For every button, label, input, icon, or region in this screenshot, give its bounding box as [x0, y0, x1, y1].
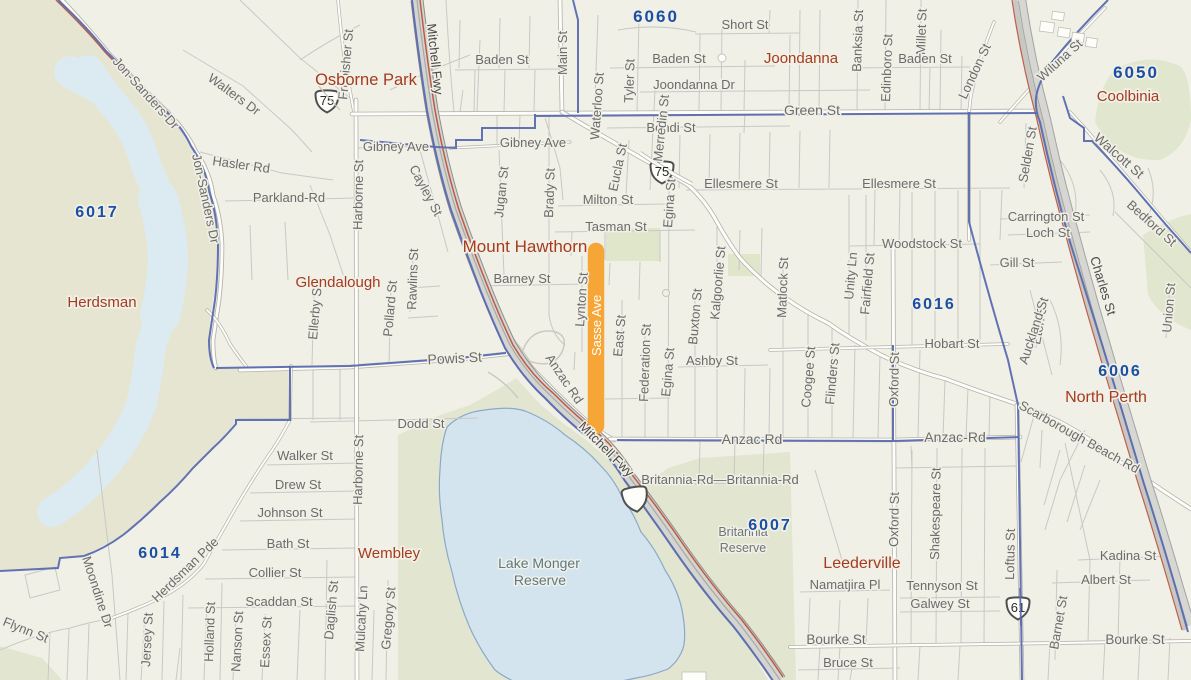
svg-text:Anzac Rd: Anzac Rd [722, 431, 783, 447]
svg-text:6007: 6007 [748, 517, 792, 534]
svg-text:6050: 6050 [1113, 63, 1159, 82]
svg-text:Leederville: Leederville [823, 555, 900, 572]
svg-text:Collier St: Collier St [249, 565, 302, 580]
svg-text:Albert St: Albert St [1081, 572, 1131, 587]
svg-text:Oxford St: Oxford St [886, 352, 902, 408]
svg-text:Walker St: Walker St [277, 448, 333, 463]
svg-text:Anzac-Rd: Anzac-Rd [924, 429, 985, 445]
svg-text:Bruce St: Bruce St [823, 655, 873, 670]
svg-text:Harborne St: Harborne St [350, 434, 366, 505]
svg-text:Bath St: Bath St [267, 536, 310, 551]
svg-text:Galwey St: Galwey St [910, 596, 970, 611]
svg-text:Tyler St: Tyler St [621, 58, 638, 103]
svg-text:Reserve: Reserve [514, 572, 566, 588]
svg-text:Lake Monger: Lake Monger [498, 555, 580, 571]
svg-text:Coolbinia: Coolbinia [1097, 88, 1160, 105]
svg-text:75: 75 [655, 164, 669, 179]
svg-text:Green St: Green St [784, 102, 840, 118]
svg-text:Ellesmere St: Ellesmere St [704, 176, 778, 191]
svg-text:Namatjira Pl: Namatjira Pl [810, 577, 881, 592]
svg-text:Sasse Ave: Sasse Ave [589, 295, 604, 356]
svg-text:Barney St: Barney St [493, 271, 550, 286]
svg-text:Baden St: Baden St [898, 51, 952, 66]
svg-text:Oxford St: Oxford St [886, 492, 902, 548]
svg-text:Reserve: Reserve [720, 541, 767, 555]
svg-text:Brady St: Brady St [541, 167, 558, 218]
svg-text:Joondanna Dr: Joondanna Dr [653, 77, 735, 92]
svg-text:Millet St: Millet St [913, 8, 930, 55]
svg-text:Nanson St: Nanson St [228, 610, 246, 672]
svg-text:Short St: Short St [722, 17, 769, 32]
svg-text:Britannia-Rd—Britannia-Rd: Britannia-Rd—Britannia-Rd [641, 472, 799, 487]
svg-text:Woodstock St: Woodstock St [882, 236, 962, 251]
svg-text:Edinboro St: Edinboro St [878, 33, 895, 102]
svg-text:Drew St: Drew St [275, 477, 322, 492]
svg-text:Scaddan St: Scaddan St [245, 594, 313, 609]
svg-text:Johnson St: Johnson St [257, 505, 322, 520]
svg-text:Milton St: Milton St [583, 192, 634, 207]
svg-text:6016: 6016 [912, 296, 956, 313]
svg-text:Mount Hawthorn: Mount Hawthorn [463, 237, 588, 256]
svg-text:Baden St: Baden St [652, 51, 706, 66]
svg-text:Bourke St: Bourke St [1105, 632, 1165, 647]
svg-text:Gibney Ave: Gibney Ave [500, 135, 566, 150]
svg-text:Bourke St: Bourke St [806, 632, 866, 647]
svg-text:Carrington St: Carrington St [1008, 209, 1085, 224]
svg-text:Hobart St: Hobart St [925, 336, 980, 351]
svg-text:6006: 6006 [1098, 363, 1142, 380]
svg-text:Ashby St: Ashby St [686, 353, 738, 368]
svg-text:Herdsman: Herdsman [67, 294, 136, 311]
svg-text:61: 61 [1011, 600, 1025, 615]
svg-text:Gill St: Gill St [1000, 255, 1035, 270]
svg-text:Dodd St: Dodd St [398, 416, 445, 431]
svg-text:Osborne Park: Osborne Park [315, 71, 418, 89]
svg-text:Parkland-Rd: Parkland-Rd [253, 190, 325, 205]
svg-text:Joondanna: Joondanna [764, 50, 839, 67]
svg-text:Harborne St: Harborne St [350, 159, 366, 230]
svg-text:Wembley: Wembley [358, 545, 421, 562]
svg-text:Loch St: Loch St [1026, 225, 1070, 240]
svg-text:6017: 6017 [75, 204, 119, 221]
svg-text:Glendalough: Glendalough [295, 274, 380, 291]
svg-text:Matlock St: Matlock St [774, 257, 791, 319]
svg-text:Main St: Main St [555, 31, 570, 75]
svg-text:Gibney Ave: Gibney Ave [363, 139, 429, 154]
svg-text:Banksia St: Banksia St [849, 9, 866, 72]
svg-text:6060: 6060 [633, 7, 679, 26]
svg-text:Tennyson St: Tennyson St [906, 578, 978, 593]
svg-text:Powis St: Powis St [427, 349, 482, 368]
svg-text:6014: 6014 [138, 545, 182, 562]
svg-text:Rawlins St: Rawlins St [404, 248, 421, 310]
svg-text:Jersey St: Jersey St [138, 612, 156, 667]
svg-text:Baden St: Baden St [475, 52, 529, 67]
svg-text:Essex St: Essex St [257, 616, 275, 668]
svg-text:Federation St: Federation St [636, 323, 654, 402]
svg-text:Holland St: Holland St [201, 601, 218, 662]
svg-text:Kadina St: Kadina St [1100, 548, 1157, 563]
svg-text:Loftus St: Loftus St [1002, 528, 1018, 580]
svg-text:Ellesmere St: Ellesmere St [862, 176, 936, 191]
svg-text:North Perth: North Perth [1065, 389, 1147, 406]
svg-text:Shakespeare St: Shakespeare St [927, 467, 944, 560]
svg-text:Tasman St: Tasman St [585, 219, 647, 234]
